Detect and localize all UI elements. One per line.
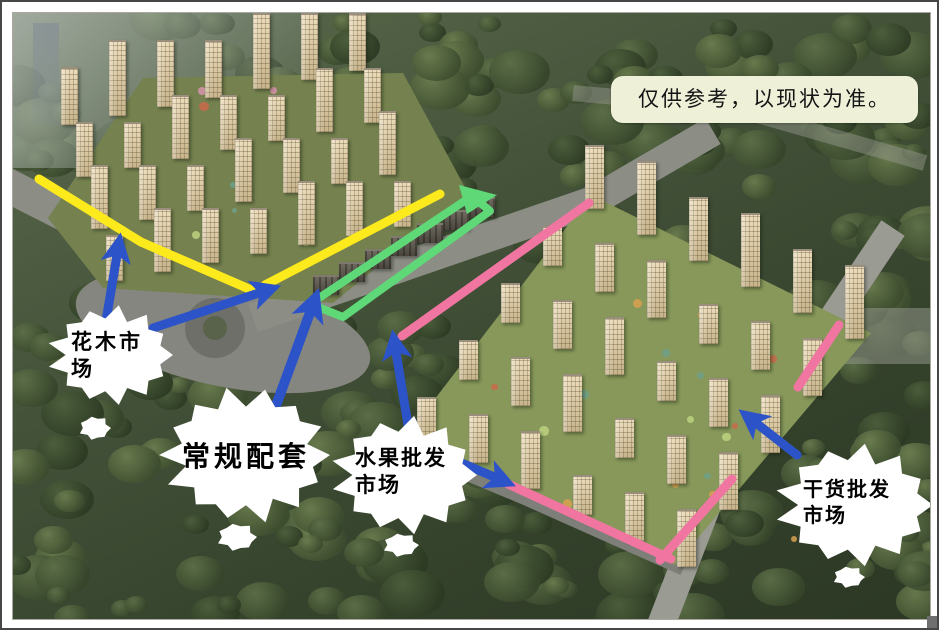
callout-bubble-fruit-tail xyxy=(384,534,419,557)
aerial-photo: 花木市场 常规配套 水果批发市场 干货批发市场 仅供参考，以现状为准。 xyxy=(12,12,931,620)
callout-bubble-regular-tail xyxy=(218,524,257,551)
callout-bubble-flower-tail xyxy=(80,417,111,440)
corner-artifact xyxy=(927,616,937,628)
callout-label-dry-goods-market: 干货批发市场 xyxy=(803,477,903,528)
disclaimer-note: 仅供参考，以现状为准。 xyxy=(611,76,918,123)
callout-label-regular-facilities: 常规配套 xyxy=(163,439,329,475)
callout-bubble-dry-goods-tail xyxy=(834,567,865,588)
callout-label-flower-market: 花木市场 xyxy=(71,329,153,383)
annotated-site-map: 花木市场 常规配套 水果批发市场 干货批发市场 仅供参考，以现状为准。 xyxy=(0,0,939,630)
callout-label-fruit-market: 水果批发市场 xyxy=(355,445,457,499)
